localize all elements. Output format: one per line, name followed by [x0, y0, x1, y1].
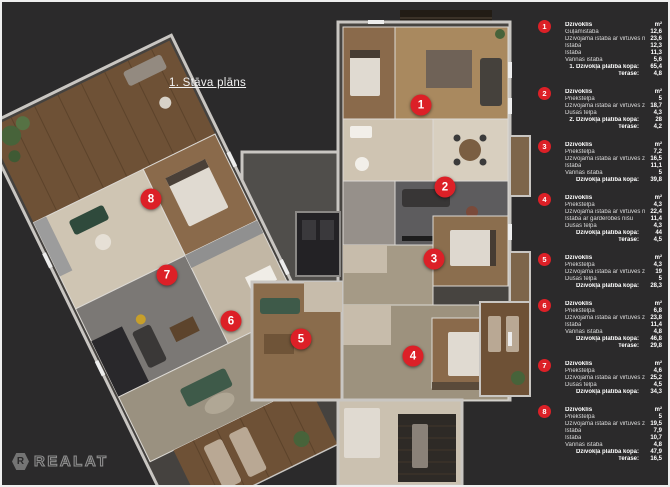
apartment-total-value: 46,8 — [645, 336, 662, 342]
room-label: Dzīvojamā istaba ar virtuves nišu — [565, 209, 645, 215]
legend-row: Terase:29,8 — [565, 343, 662, 349]
room-label: Priekštelpa — [565, 368, 595, 374]
room-area: 5,6 — [645, 57, 662, 63]
legend-header-label: Dzīvoklis — [565, 255, 592, 261]
legend-row: Dzīvojamā istaba ar virtuves zonu18,7 — [565, 103, 662, 109]
legend-row: Dzīvoklism² — [565, 22, 662, 28]
room-label: Vannas istaba — [565, 329, 603, 335]
legend-row: Dzīvoklism² — [565, 89, 662, 95]
legend-row: Dzīvojamā istaba ar virtuves zonu19,5 — [565, 421, 662, 427]
apartment-marker-4: 4 — [403, 346, 424, 367]
legend-row: Terase:16,5 — [565, 456, 662, 462]
room-area: 4,3 — [645, 202, 662, 208]
room-area: 23,6 — [645, 36, 662, 42]
room-label: Dzīvojamā istaba ar virtuves zonu — [565, 156, 645, 162]
room-area: 11,3 — [645, 50, 662, 56]
legend-row: Priekštelpa5 — [565, 414, 662, 420]
apartment-marker-8: 8 — [141, 189, 162, 210]
room-area: 11,4 — [645, 216, 662, 222]
apartment-marker-5: 5 — [291, 329, 312, 350]
legend-row: 1. Dzīvokļa platība kopā:65,4 — [565, 64, 662, 70]
apartment-number-badge: 8 — [538, 405, 551, 418]
bottom-extension — [338, 400, 462, 486]
room-label: Istaba — [565, 322, 581, 328]
legend-row: Priekštelpa4,3 — [565, 262, 662, 268]
legend-row: Terase:4,2 — [565, 124, 662, 130]
legend-row: Dzīvokļa platība kopā:47,9 — [565, 449, 662, 455]
legend-apartment-7: 7Dzīvoklism²Priekštelpa4,6Dzīvojamā ista… — [538, 361, 662, 395]
legend-header-unit: m² — [645, 195, 662, 201]
room-label: Priekštelpa — [565, 308, 595, 314]
room-label: Dzīvojamā istaba ar virtuves nišu — [565, 36, 645, 42]
room-label: Istaba — [565, 435, 581, 441]
room-area: 4,3 — [645, 223, 662, 229]
room-label: Dušas telpa — [565, 223, 597, 229]
legend-header-unit: m² — [645, 142, 662, 148]
apartment-total-value: 39,8 — [645, 177, 662, 183]
room-label: Istaba — [565, 43, 581, 49]
legend-row: Dušas telpa4,3 — [565, 223, 662, 229]
legend-row: Priekštelpa7,2 — [565, 149, 662, 155]
apartment-total-value: 28,3 — [645, 283, 662, 289]
apartment-total-value: 28 — [645, 117, 662, 123]
room-label: Priekštelpa — [565, 149, 595, 155]
legend-row: Dzīvojamā istaba ar virtuves zonu16,5 — [565, 156, 662, 162]
apartment-number-badge: 5 — [538, 253, 551, 266]
legend-header-unit: m² — [645, 22, 662, 28]
room-area: 23,8 — [645, 315, 662, 321]
legend-row: Vannas istaba5,6 — [565, 57, 662, 63]
apartment-number-badge: 7 — [538, 359, 551, 372]
room-area: 4,6 — [645, 368, 662, 374]
room-label: Vannas istaba — [565, 442, 603, 448]
apartment-total-label: Dzīvokļa platība kopā: — [565, 177, 645, 183]
realat-logo-icon: R — [12, 453, 29, 470]
legend-row: Dzīvojamā istaba ar virtuves zonu25,2 — [565, 375, 662, 381]
apartment-total-label: Dzīvokļa platība kopā: — [565, 283, 645, 289]
legend-header-label: Dzīvoklis — [565, 142, 592, 148]
terrace-value: 16,5 — [645, 456, 662, 462]
room-label: Dušas telpa — [565, 276, 597, 282]
legend-row: Istaba7,9 — [565, 428, 662, 434]
room-area: 4,3 — [645, 110, 662, 116]
room-area: 4,3 — [645, 262, 662, 268]
apartment-total-value: 47,9 — [645, 449, 662, 455]
room-label: Istaba ar garderobes nišu — [565, 216, 633, 222]
legend-header-unit: m² — [645, 361, 662, 367]
legend-row: Priekštelpa5 — [565, 96, 662, 102]
floor-plan-page: 12345678 1. Stāva plāns 1Dzīvoklism²Guļa… — [0, 0, 670, 487]
legend-apartment-4: 4Dzīvoklism²Priekštelpa4,3Dzīvojamā ista… — [538, 195, 662, 243]
legend-row: Terase:4,8 — [565, 71, 662, 77]
room-label: Priekštelpa — [565, 96, 595, 102]
room-area: 5 — [645, 276, 662, 282]
room-area: 22,4 — [645, 209, 662, 215]
room-label: Dušas telpa — [565, 110, 597, 116]
legend-row: Dušas telpa5 — [565, 276, 662, 282]
legend-row: Dzīvojamā istaba ar virtuves nišu23,6 — [565, 36, 662, 42]
realat-logo-text: REALAT — [34, 453, 109, 470]
legend-row: Istaba ar garderobes nišu11,4 — [565, 216, 662, 222]
legend-row: Dzīvoklism² — [565, 195, 662, 201]
room-label: Dzīvojamā istaba ar virtuves zonu — [565, 269, 645, 275]
room-label: Vannas istaba — [565, 170, 603, 176]
legend-header-label: Dzīvoklis — [565, 22, 592, 28]
terrace-label: Terase: — [565, 124, 645, 130]
legend-header-label: Dzīvoklis — [565, 361, 592, 367]
room-area: 7,9 — [645, 428, 662, 434]
apartment-total-label: 1. Dzīvokļa platība kopā: — [565, 64, 645, 70]
room-area: 12,6 — [645, 29, 662, 35]
legend-row: Dušas telpa4,5 — [565, 382, 662, 388]
legend-header-unit: m² — [645, 89, 662, 95]
apartment-marker-2: 2 — [435, 177, 456, 198]
legend-row: Vannas istaba5 — [565, 170, 662, 176]
room-area: 5 — [645, 170, 662, 176]
terrace-value: 29,8 — [645, 343, 662, 349]
legend-row: Dzīvokļa platība kopā:28,3 — [565, 283, 662, 289]
legend-row: Priekštelpa6,8 — [565, 308, 662, 314]
room-area: 16,5 — [645, 156, 662, 162]
room-area: 18,7 — [645, 103, 662, 109]
terrace-value: 4,5 — [645, 237, 662, 243]
legend-row: Dzīvoklism² — [565, 361, 662, 367]
apartment-total-label: Dzīvokļa platība kopā: — [565, 230, 645, 236]
legend-row: Dzīvojamā istaba ar virtuves zonu19 — [565, 269, 662, 275]
apartment-total-label: Dzīvokļa platība kopā: — [565, 449, 645, 455]
legend-row: Dzīvokļa platība kopā:34,3 — [565, 389, 662, 395]
room-area: 5 — [645, 414, 662, 420]
legend-row: 2. Dzīvokļa platība kopā:28 — [565, 117, 662, 123]
apartment-marker-1: 1 — [411, 95, 432, 116]
apartment-marker-7: 7 — [157, 265, 178, 286]
legend-apartment-3: 3Dzīvoklism²Priekštelpa7,2Dzīvojamā ista… — [538, 142, 662, 183]
elevator-core — [296, 212, 340, 276]
apartment-total-value: 65,4 — [645, 64, 662, 70]
room-label: Istaba — [565, 428, 581, 434]
room-label: Istaba — [565, 50, 581, 56]
room-label: Priekštelpa — [565, 262, 595, 268]
legend-row: Dzīvojamā istaba ar virtuves nišu22,4 — [565, 209, 662, 215]
room-area: 12,3 — [645, 43, 662, 49]
apartment-total-label: 2. Dzīvokļa platība kopā: — [565, 117, 645, 123]
room-area: 4,5 — [645, 382, 662, 388]
legend-header-unit: m² — [645, 407, 662, 413]
room-area: 11,4 — [645, 322, 662, 328]
legend-header-unit: m² — [645, 255, 662, 261]
room-area: 5 — [645, 96, 662, 102]
legend-row: Dzīvokļa platība kopā:39,8 — [565, 177, 662, 183]
room-area: 4,8 — [645, 329, 662, 335]
room-area: 11,1 — [645, 163, 662, 169]
realat-logo: R REALAT — [12, 453, 109, 470]
apartment-number-badge: 2 — [538, 87, 551, 100]
room-area: 4,8 — [645, 442, 662, 448]
legend-row: Priekštelpa4,6 — [565, 368, 662, 374]
legend-apartment-6: 6Dzīvoklism²Priekštelpa6,8Dzīvojamā ista… — [538, 301, 662, 349]
plan-title: 1. Stāva plāns — [169, 77, 246, 89]
legend-header-unit: m² — [645, 301, 662, 307]
legend-row: Dzīvokļa platība kopā:44 — [565, 230, 662, 236]
legend-row: Istaba11,1 — [565, 163, 662, 169]
legend-row: Dzīvoklism² — [565, 407, 662, 413]
legend-row: Istaba11,4 — [565, 322, 662, 328]
room-label: Priekštelpa — [565, 414, 595, 420]
terrace-label: Terase: — [565, 71, 645, 77]
apartment-marker-3: 3 — [424, 249, 445, 270]
apartment-number-badge: 1 — [538, 20, 551, 33]
room-label: Dzīvojamā istaba ar virtuves zonu — [565, 315, 645, 321]
legend-header-label: Dzīvoklis — [565, 301, 592, 307]
legend-row: Terase:4,5 — [565, 237, 662, 243]
room-label: Istaba — [565, 163, 581, 169]
legend-row: Istaba10,7 — [565, 435, 662, 441]
legend-row: Dzīvoklism² — [565, 301, 662, 307]
apartment-number-badge: 3 — [538, 140, 551, 153]
legend-row: Dzīvoklism² — [565, 142, 662, 148]
legend-row: Priekštelpa4,3 — [565, 202, 662, 208]
legend-row: Dzīvokļa platība kopā:46,8 — [565, 336, 662, 342]
apartment-number-badge: 6 — [538, 299, 551, 312]
room-label: Dzīvojamā istaba ar virtuves zonu — [565, 103, 645, 109]
terrace-value: 4,8 — [645, 71, 662, 77]
terrace-label: Terase: — [565, 237, 645, 243]
legend-apartment-2: 2Dzīvoklism²Priekštelpa5Dzīvojamā istaba… — [538, 89, 662, 130]
room-area: 7,2 — [645, 149, 662, 155]
legend: 1Dzīvoklism²Guļamistaba12,6Dzīvojamā ist… — [538, 22, 662, 474]
apartment-marker-6: 6 — [221, 311, 242, 332]
legend-row: Istaba11,3 — [565, 50, 662, 56]
terrace-label: Terase: — [565, 343, 645, 349]
room-area: 19,5 — [645, 421, 662, 427]
room-label: Dzīvojamā istaba ar virtuves zonu — [565, 421, 645, 427]
legend-row: Vannas istaba4,8 — [565, 329, 662, 335]
legend-row: Dzīvoklism² — [565, 255, 662, 261]
legend-apartment-1: 1Dzīvoklism²Guļamistaba12,6Dzīvojamā ist… — [538, 22, 662, 77]
apartment-total-value: 34,3 — [645, 389, 662, 395]
room-label: Guļamistaba — [565, 29, 599, 35]
apartment-total-label: Dzīvokļa platība kopā: — [565, 336, 645, 342]
legend-row: Dušas telpa4,3 — [565, 110, 662, 116]
room-area: 6,8 — [645, 308, 662, 314]
legend-header-label: Dzīvoklis — [565, 407, 592, 413]
room-area: 19 — [645, 269, 662, 275]
room-area: 10,7 — [645, 435, 662, 441]
room-label: Vannas istaba — [565, 57, 603, 63]
apartment-total-value: 44 — [645, 230, 662, 236]
legend-apartment-8: 8Dzīvoklism²Priekštelpa5Dzīvojamā istaba… — [538, 407, 662, 462]
terrace-value: 4,2 — [645, 124, 662, 130]
room-label: Dušas telpa — [565, 382, 597, 388]
terrace-label: Terase: — [565, 456, 645, 462]
legend-row: Guļamistaba12,6 — [565, 29, 662, 35]
legend-row: Vannas istaba4,8 — [565, 442, 662, 448]
legend-apartment-5: 5Dzīvoklism²Priekštelpa4,3Dzīvojamā ista… — [538, 255, 662, 289]
room-area: 25,2 — [645, 375, 662, 381]
room-label: Dzīvojamā istaba ar virtuves zonu — [565, 375, 645, 381]
legend-header-label: Dzīvoklis — [565, 195, 592, 201]
legend-header-label: Dzīvoklis — [565, 89, 592, 95]
apartment-number-badge: 4 — [538, 193, 551, 206]
room-label: Priekštelpa — [565, 202, 595, 208]
legend-row: Dzīvojamā istaba ar virtuves zonu23,8 — [565, 315, 662, 321]
apartment-total-label: Dzīvokļa platība kopā: — [565, 389, 645, 395]
legend-row: Istaba12,3 — [565, 43, 662, 49]
